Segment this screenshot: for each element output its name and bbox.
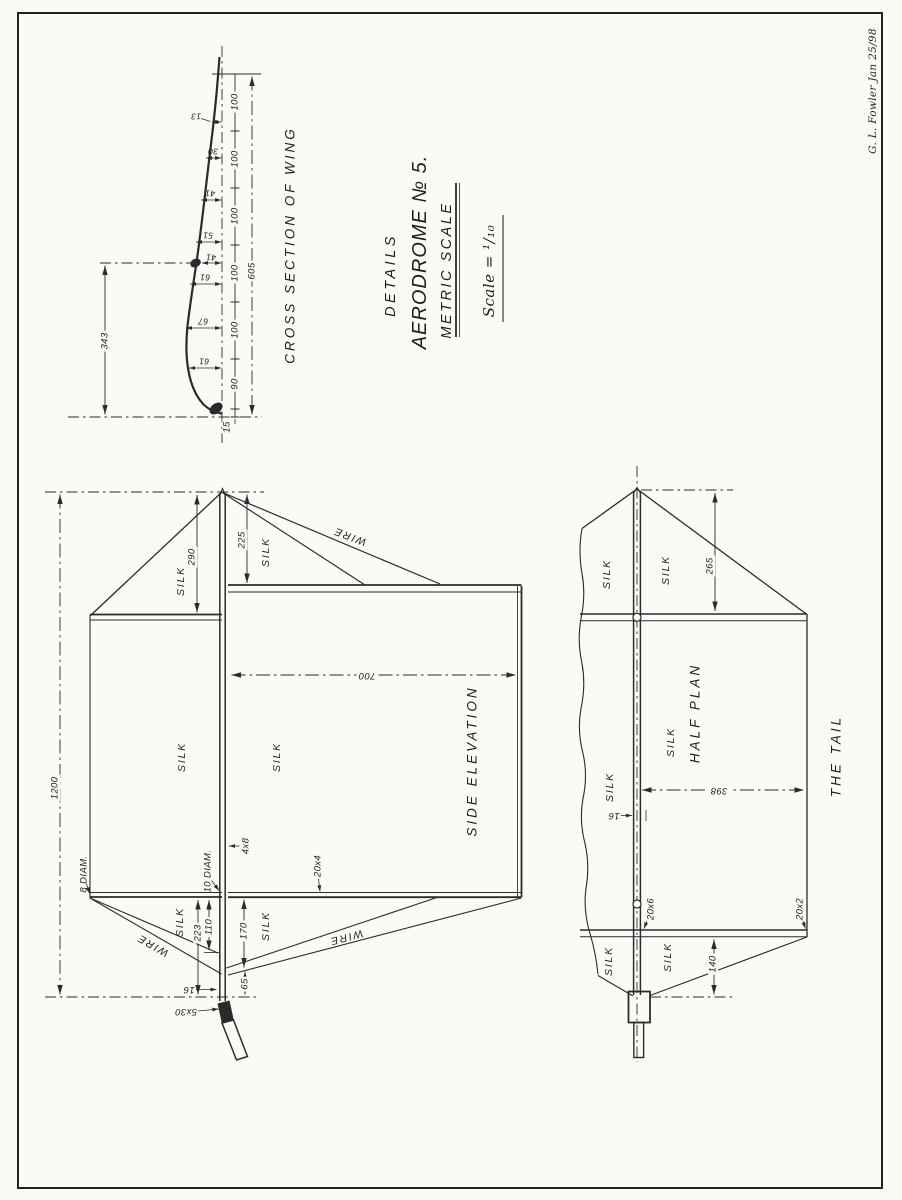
dim-398: 398 (708, 785, 729, 795)
dim-ordinate: 41 (205, 189, 215, 198)
dim-overall-1200: 1200 (50, 775, 60, 802)
draftsman-signature: G. L. Fowler Jan 25/98 (867, 28, 879, 154)
dim-keel-width-16: 16 (608, 810, 619, 820)
dim-rib-20x6: 20x6 (646, 898, 656, 920)
dim-keel-16: 16 (183, 984, 194, 994)
dim-ordinate: 61 (200, 273, 210, 282)
dim-mast-head: 8 DIAM. (79, 855, 89, 892)
dim-boom-4x8: 4x8 (241, 838, 251, 855)
silk-label: SILK (175, 907, 186, 937)
dim-chord-total: 605 (247, 260, 257, 281)
silk-label: SILK (663, 942, 674, 972)
dim-station: 100 (230, 148, 240, 169)
drawing-plate: CROSS SECTION OF WING 605 343 100 100 10… (0, 0, 902, 1200)
dim-170: 170 (239, 920, 249, 941)
dim-265: 265 (705, 555, 715, 576)
dim-station: 100 (230, 319, 240, 340)
title-details: DETAILS (384, 233, 399, 317)
dim-stick-5x30: 5x30 (175, 1006, 197, 1016)
dim-ordinate: 61 (199, 357, 209, 366)
dim-station: 100 (230, 91, 240, 112)
dim-camber-height: 343 (100, 330, 110, 351)
dim-ordinate: 51 (203, 231, 213, 240)
dim-ordinate: 41 (206, 252, 216, 261)
caption-side-elevation: SIDE ELEVATION (465, 685, 479, 836)
plate-border (18, 13, 882, 1188)
dim-140: 140 (708, 953, 718, 974)
caption-half-plan: HALF PLAN (688, 663, 702, 763)
title-metric-scale: METRIC SCALE (440, 201, 455, 338)
dim-mast-foot: 10 DIAM. (203, 850, 213, 893)
dim-edge-20x2: 20x2 (795, 898, 805, 920)
dim-223: 223 (193, 922, 203, 943)
dim-fin-290: 290 (187, 546, 197, 567)
dim-ordinate: 30 (208, 147, 218, 156)
silk-label: SILK (177, 742, 188, 772)
silk-label: SILK (261, 911, 272, 941)
dim-depth-700: 700 (356, 670, 377, 680)
dim-ordinate: 67 (198, 317, 208, 326)
caption-the-tail: THE TAIL (829, 715, 843, 797)
cross-section-title: CROSS SECTION OF WING (283, 126, 297, 364)
dim-ordinate: 13 (191, 112, 201, 121)
dim-edge-20x4: 20x4 (313, 855, 323, 877)
silk-label: SILK (602, 559, 613, 589)
silk-label: SILK (604, 946, 615, 976)
dim-fin-225: 225 (237, 529, 247, 550)
dim-65: 65 (240, 976, 250, 991)
dim-110: 110 (204, 917, 214, 937)
side-elevation-linework (45, 489, 522, 1061)
dim-station: 90 (230, 376, 240, 391)
dim-station: 100 (230, 205, 240, 226)
title-aerodrome: AERODROME № 5. (410, 155, 430, 350)
silk-label: SILK (261, 537, 272, 567)
silk-label: SILK (605, 772, 616, 802)
dim-station: 15 (222, 419, 232, 434)
silk-label: SILK (661, 555, 672, 585)
silk-label: SILK (272, 742, 283, 772)
silk-label: SILK (666, 727, 677, 757)
title-scale-note: Scale = ¹/₁₀ (480, 225, 498, 318)
silk-label: SILK (176, 566, 187, 596)
dim-station: 100 (230, 262, 240, 283)
linework (0, 0, 902, 1200)
